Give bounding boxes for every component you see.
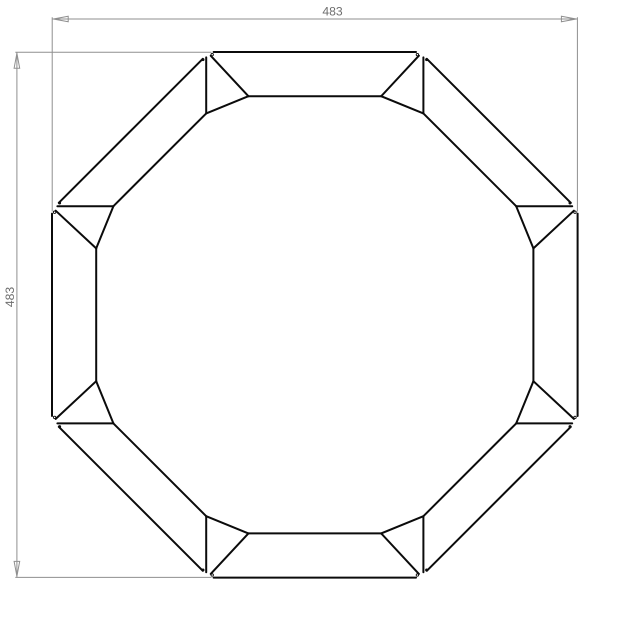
svg-text:483: 483 <box>3 287 17 308</box>
svg-text:483: 483 <box>322 4 343 18</box>
